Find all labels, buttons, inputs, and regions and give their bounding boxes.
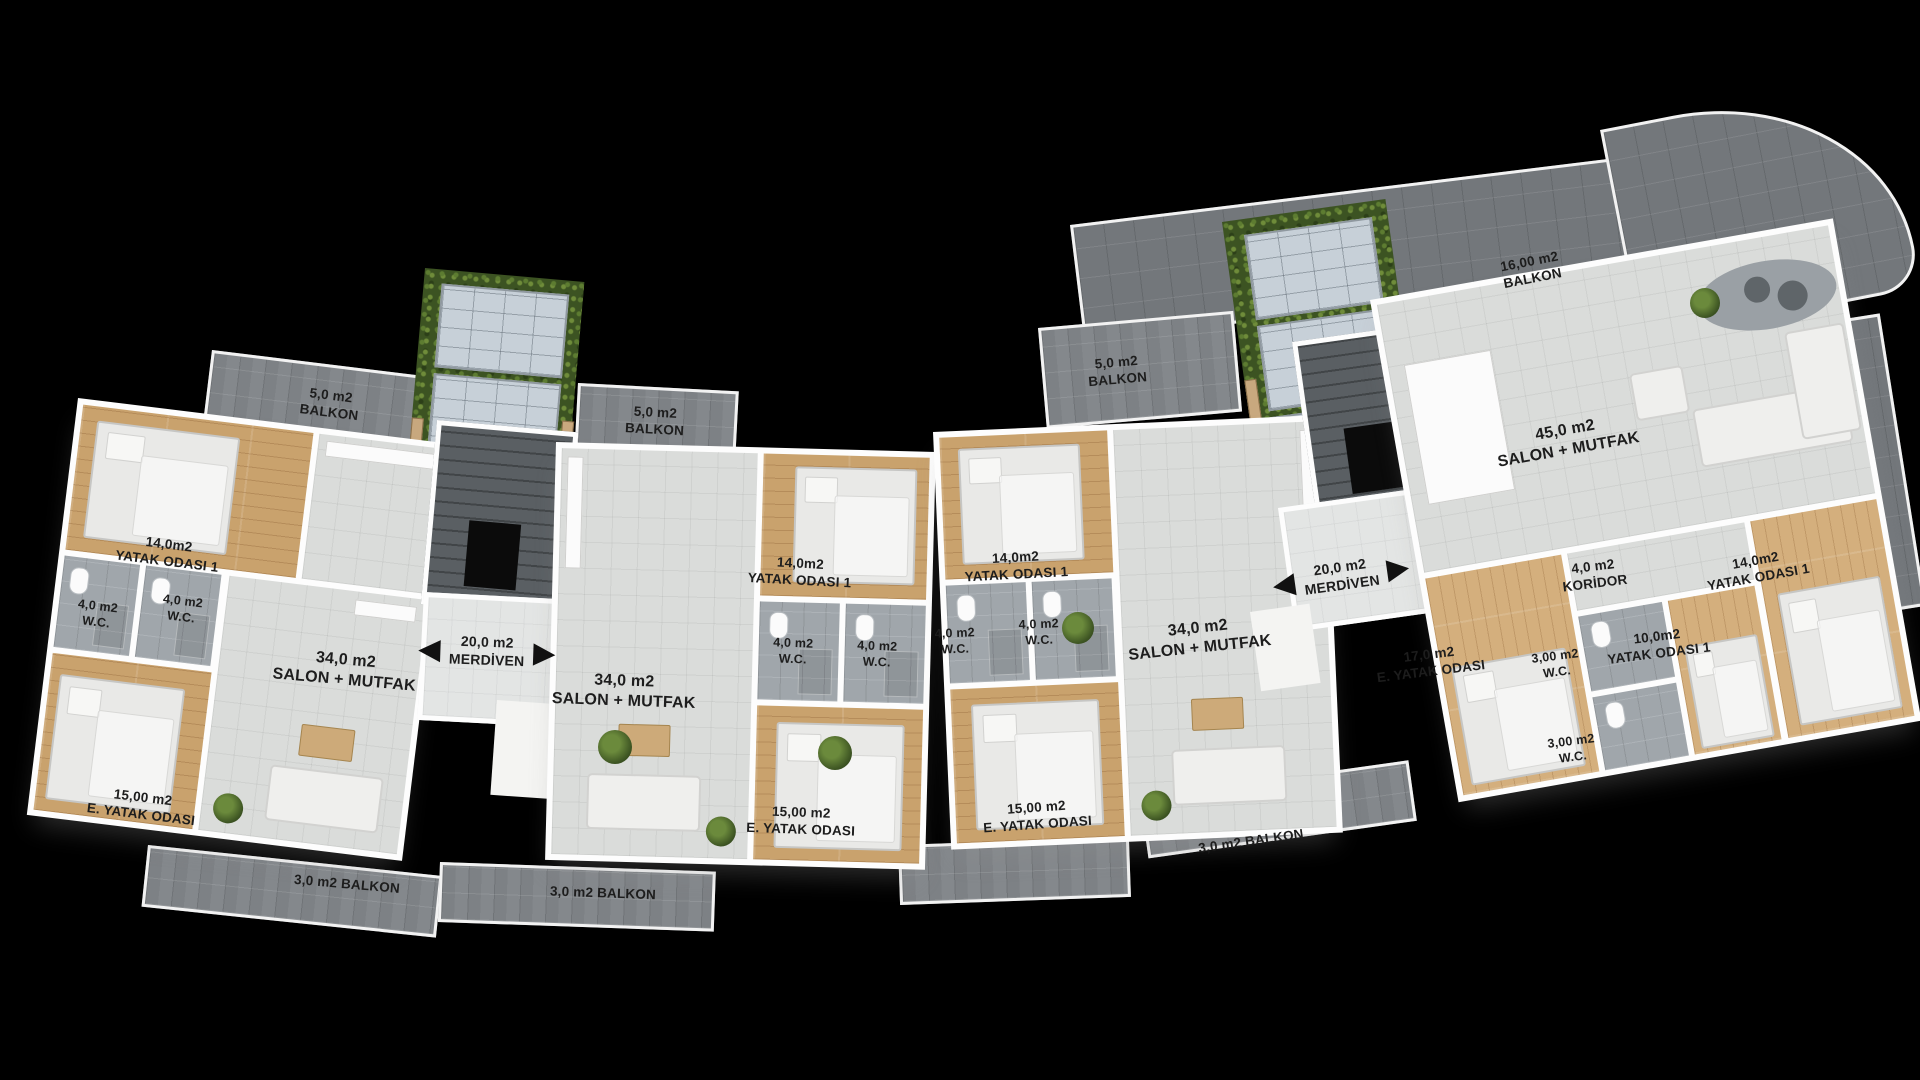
stair-opening [464,520,522,590]
plant [705,816,736,847]
apt3-balcony-bottom [898,837,1131,905]
apt1-wc2-label: 4,0 m2W.C. [160,591,204,628]
left-stairs-label: ◀ 20,0 m2MERDİVEN ▶ [419,630,556,671]
apt2-balcony-bottom-label: 3,0 m2 BALKON [550,883,657,904]
apt2-salon-floor [551,448,758,859]
wardrobe [325,441,440,471]
toilet [1042,591,1062,619]
arrow-left-icon: ◀ [419,635,441,663]
sofa [1171,745,1287,806]
toilet [68,566,90,595]
apt4-wc1-label: 3,00 m2W.C. [1531,645,1582,683]
apt4-wc2-label: 3,00 m2W.C. [1547,730,1598,768]
armchair [1629,365,1691,422]
apt2-master-bedroom-label: 15,00 m2E. YATAK ODASI [746,802,856,840]
plant [1690,288,1720,318]
plant [818,736,852,770]
apt3-bedroom1-label: 14,0m2YATAK ODASI 1 [963,546,1068,586]
apt2-bedroom1-label: 14,0m2YATAK ODASI 1 [747,552,852,592]
apt2-master-bedroom-floor [753,705,923,863]
apartment-4 [1370,218,1920,802]
toilet [1604,700,1627,730]
sofa [586,773,701,832]
apt3-balcony-top-label: 5,0 m2BALKON [1086,351,1148,391]
arrow-left-icon: ◀ [1272,569,1297,599]
apt3-wc1-label: 4,0 m2W.C. [934,624,975,657]
plant [211,792,244,825]
apt2-wc2-label: 4,0 m2W.C. [856,637,897,670]
apt3-wc2-label: 4,0 m2W.C. [1018,615,1059,648]
sofa [264,764,384,833]
plant [1062,612,1094,644]
floor-plan-canvas: 5,0 m2BALKON 5,0 m2BALKON 5,0 m2BALKON 1… [0,0,1920,1080]
bed [1777,576,1903,726]
coffee-table [298,724,355,762]
kitchen-island [1404,350,1515,505]
solar-panel-icon [1244,217,1384,320]
apt1-wc1-label: 4,0 m2W.C. [75,596,119,633]
arrow-right-icon: ▶ [533,639,555,667]
solar-panel-icon [434,284,569,379]
toilet [956,594,976,622]
apt2-wc1-label: 4,0 m2W.C. [772,634,813,667]
apt1-salon-floor [198,576,428,854]
kitchen-counter [354,599,417,622]
apt2-balcony-top-label: 5,0 m2BALKON [625,402,686,440]
apt2-salon-label: 34,0 m2SALON + MUTFAK [551,669,696,715]
coffee-table [1191,697,1244,731]
plant [1141,790,1172,821]
apt1-balcony-top-label: 5,0 m2BALKON [299,383,362,424]
kitchen-counter [565,456,584,568]
apt4-bedroom2-floor [1668,586,1782,755]
apt4-wc2-floor [1592,683,1689,771]
arrow-right-icon: ▶ [1385,553,1410,583]
plant [598,730,632,764]
